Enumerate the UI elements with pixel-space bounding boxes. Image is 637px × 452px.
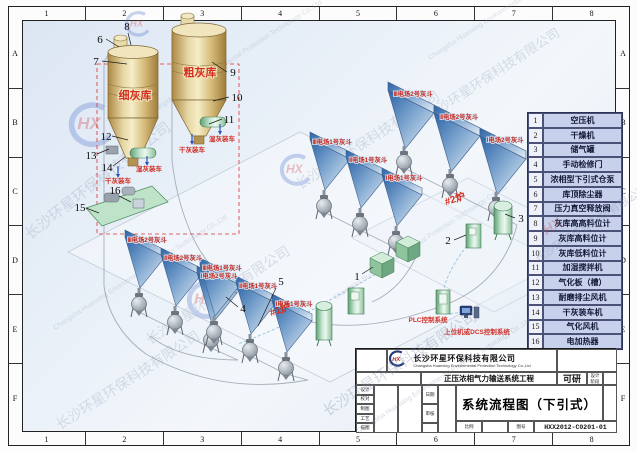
legend-num: 5 (528, 172, 543, 187)
callout-8: 8 (124, 21, 130, 33)
wet-ash-loading-label: 湿灰装车 (136, 164, 163, 173)
legend-label: 灰库高高料位计 (543, 216, 622, 231)
legend-num: 9 (528, 231, 543, 246)
signature-column (398, 385, 422, 433)
legend-num: 12 (528, 275, 543, 290)
legend-num: 4 (528, 157, 543, 172)
legend-label: 灰库低料位计 (543, 246, 622, 261)
dry-ash-loading-label: 干灰装车 (179, 145, 206, 154)
legend-label: 储气罐 (543, 143, 622, 158)
signature-row-label: 描图 (356, 423, 374, 433)
plc-system-label: PLC控制系统 (409, 315, 449, 324)
hopper-label: Ⅲ电场1号灰斗 (312, 137, 352, 146)
company-name-cn: 长沙环星环保科技有限公司 (413, 354, 530, 363)
dry-ash-loading-label: 干灰装车 (105, 176, 132, 185)
legend-label: 气化板（槽） (543, 275, 622, 290)
signature-row-label: 设计 (356, 385, 374, 395)
legend-num: 16 (528, 334, 543, 349)
company-logo-cell: HX 长沙环星环保科技有限公司 Changsha Huanxing Enviro… (387, 349, 557, 372)
legend-label: 手动检修门 (543, 157, 622, 172)
legend-label: 空压机 (543, 113, 622, 128)
operator-computer (460, 306, 479, 318)
date-label: 日期 (422, 385, 438, 404)
drawing-number: HXX2012-C0201-01 (534, 421, 617, 433)
title-block-empty-cell (603, 385, 617, 421)
legend-label: 干灰装车机 (543, 305, 622, 320)
plc-cabinet (436, 290, 450, 314)
callout-3: 3 (518, 213, 524, 225)
hopper-label: Ⅰ电场2号灰斗 (201, 271, 239, 280)
equipment-legend: 1空压机 2干燥机 3储气罐 4手动检修门 5浓相型下引式仓泵 6库顶除尘器 7… (527, 112, 623, 350)
signature-row-label: 工艺 (356, 414, 374, 424)
hopper-label: Ⅱ电场1号灰斗 (239, 281, 278, 290)
coarse-ash-silo-label: 粗灰库 (184, 65, 217, 79)
legend-label: 气化风机 (543, 320, 622, 335)
air-receiver-tank-1 (316, 302, 332, 347)
scale-value-cell (482, 421, 508, 433)
title-block-empty-cell (603, 372, 617, 385)
signature-column (374, 385, 398, 433)
electric-heater (133, 199, 144, 208)
legend-label: 灰库高料位计 (543, 231, 622, 246)
callout-7: 7 (93, 56, 99, 68)
fine-ash-silo-label: 细灰库 (119, 88, 152, 102)
dryer-cabinet-2 (466, 224, 481, 248)
company-logo: HX (388, 350, 408, 368)
signature-row-label: 校对 (356, 395, 374, 405)
legend-label: 电加热器 (543, 334, 622, 349)
drawing-no-label: 图号 (508, 421, 534, 433)
legend-label: 库顶除尘器 (543, 187, 622, 202)
legend-num: 7 (528, 202, 543, 217)
callout-16: 16 (110, 185, 122, 197)
dryer-cabinet-1 (348, 288, 364, 314)
watermark-text: 长沙环星环保科技有限公司 (423, 25, 562, 123)
callout-10: 10 (232, 92, 244, 104)
hopper-label: Ⅰ电场1号灰斗 (386, 173, 424, 182)
title-block-empty-cell (356, 372, 421, 385)
callout-14: 14 (102, 162, 114, 174)
legend-num: 13 (528, 290, 543, 305)
design-stage-label: 设计 阶段 (587, 372, 603, 385)
legend-label: 干燥机 (543, 128, 622, 143)
callout-2: 2 (445, 235, 451, 247)
signature-row-label: 制图 (356, 404, 374, 414)
callout-13: 13 (86, 150, 98, 162)
legend-num: 15 (528, 320, 543, 335)
drawing-title: 系统流程图（下引式） (456, 385, 603, 421)
scale-label: 比例 (456, 421, 482, 433)
legend-label: 压力真空释放阀 (543, 202, 622, 217)
design-stage-label-line2: 阶段 (591, 379, 600, 385)
callout-6: 6 (97, 34, 103, 46)
signature-column (438, 385, 456, 433)
company-name-en: Changsha Huanxing Environmental Protecti… (413, 363, 530, 368)
legend-label: 浓相型下引式仓泵 (543, 172, 622, 187)
callout-15: 15 (75, 202, 87, 214)
dcs-system-label: 上位机或DCS控制系统 (444, 327, 510, 336)
hopper-label: Ⅱ电场2号灰斗 (164, 253, 203, 262)
legend-label: 加湿搅拌机 (543, 261, 622, 276)
hopper-label: Ⅲ电场2号灰斗 (393, 89, 433, 98)
hopper-label: Ⅲ电场2号灰斗 (127, 235, 167, 244)
title-block-empty-cell (356, 349, 387, 372)
legend-label: 耐磨排尘风机 (543, 290, 622, 305)
callout-4: 4 (240, 303, 246, 315)
title-block: HX 长沙环星环保科技有限公司 Changsha Huanxing Enviro… (355, 348, 616, 432)
title-block-empty-cell (422, 423, 438, 433)
callout-9: 9 (230, 67, 236, 79)
legend-num: 2 (528, 128, 543, 143)
legend-num: 1 (528, 113, 543, 128)
legend-num: 8 (528, 216, 543, 231)
legend-num: 14 (528, 305, 543, 320)
review-label: 审核 (422, 404, 438, 423)
hopper-label: Ⅲ电场1号灰斗 (202, 263, 242, 272)
drawing-sheet: 1 2 3 4 5 6 7 8 1 2 3 4 5 6 7 8 A B C D … (0, 0, 637, 452)
wet-ash-loading-label: 湿灰装车 (209, 134, 236, 143)
design-stage-value: 可研 (557, 372, 587, 385)
hopper-label: Ⅱ电场1号灰斗 (349, 155, 388, 164)
watermark-text: 长沙环星环保科技有限公司 (53, 328, 203, 433)
legend-num: 6 (528, 187, 543, 202)
legend-num: 10 (528, 246, 543, 261)
legend-num: 11 (528, 261, 543, 276)
callout-11: 11 (224, 114, 235, 126)
company-logo-text: HX (392, 357, 401, 363)
callout-1: 1 (354, 271, 360, 283)
callout-12: 12 (101, 131, 112, 143)
project-name: 正压浓相气力输送系统工程 (421, 372, 557, 385)
title-block-empty-cell (557, 349, 617, 372)
air-receiver-tank-2 (494, 201, 512, 240)
hopper-label: Ⅱ电场2号灰斗 (440, 112, 479, 121)
legend-num: 3 (528, 143, 543, 158)
callout-5: 5 (278, 276, 284, 288)
hopper-label: Ⅰ电场2号灰斗 (487, 135, 525, 144)
